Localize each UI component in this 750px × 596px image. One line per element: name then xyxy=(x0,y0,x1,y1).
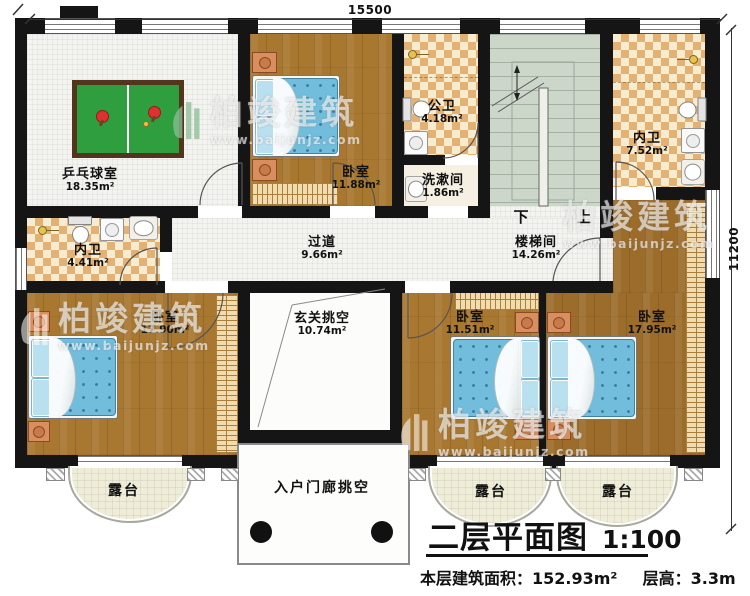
void-boundary-lines xyxy=(258,289,385,427)
label-bedroom-left: 卧室17.90m² xyxy=(141,311,190,337)
label-terrace-left: 露台 xyxy=(108,480,140,500)
label-washroom: 洗漱间1.86m² xyxy=(422,174,464,200)
title-underline xyxy=(426,554,648,557)
plan-title: 二层平面图 1:100 xyxy=(428,512,682,557)
plan-title-text: 二层平面图 xyxy=(428,512,588,557)
door-ensuite-right xyxy=(616,162,654,200)
label-stairwell: 楼梯间14.26m² xyxy=(512,236,561,262)
height-value: 3.3m xyxy=(691,569,736,588)
floor-plan: 15500 11200 乒乓球室18.35m² 卧室11.88m² 公卫4.18… xyxy=(0,0,750,596)
label-corridor: 过道9.66m² xyxy=(301,236,342,262)
label-bedroom-top: 卧室11.88m² xyxy=(332,166,381,192)
plan-line-overlay xyxy=(0,0,750,596)
label-ensuite-right: 内卫7.52m² xyxy=(626,132,667,158)
stair-details xyxy=(492,62,574,206)
label-public-bath: 公卫4.18m² xyxy=(421,100,462,126)
door-ensuite-left xyxy=(120,248,157,285)
label-stairs-up: 上 xyxy=(576,206,591,227)
label-terrace-right: 露台 xyxy=(602,481,634,501)
label-bedroom-right: 卧室17.95m² xyxy=(628,311,677,337)
plan-scale: 1:100 xyxy=(602,525,682,554)
dimension-line-top xyxy=(30,19,722,20)
door-pingpong xyxy=(200,163,242,205)
label-entry-void: 玄关挑空10.74m² xyxy=(294,312,350,338)
dimension-top-value: 15500 xyxy=(340,3,400,17)
label-terrace-mid: 露台 xyxy=(475,481,507,501)
plan-note: 本层建筑面积：152.93m² 层高：3.3m xyxy=(420,565,736,589)
dimension-right-value: 11200 xyxy=(727,219,741,279)
label-ensuite-left: 内卫4.41m² xyxy=(67,244,108,270)
area-value: 152.93m² xyxy=(532,569,617,588)
area-label: 本层建筑面积： xyxy=(420,569,532,588)
door-public-bath xyxy=(443,123,478,158)
dimension-line-right xyxy=(731,28,732,531)
label-pingpong: 乒乓球室18.35m² xyxy=(62,168,118,194)
dimension-ticks xyxy=(13,4,736,534)
label-bedroom-mid: 卧室11.51m² xyxy=(446,311,495,337)
label-stairs-down: 下 xyxy=(513,206,528,227)
label-porch: 入户门廊挑空 xyxy=(274,477,370,497)
height-label: 层高： xyxy=(643,569,691,588)
